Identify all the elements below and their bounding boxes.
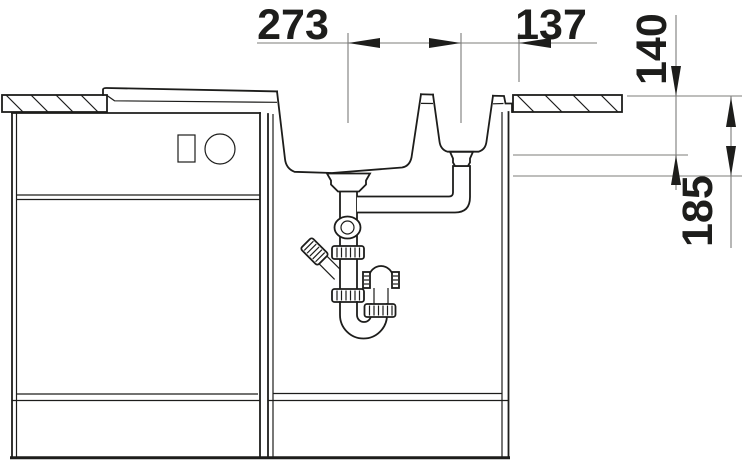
dimension-273: 273 — [257, 1, 461, 123]
countertop-left-section — [2, 95, 107, 112]
trap-outlet-swivel — [363, 266, 399, 317]
left-base-cabinet — [12, 113, 260, 457]
control-panel-square-symbol — [178, 135, 195, 162]
main-drain-flange — [327, 174, 370, 192]
small-bowl — [433, 95, 493, 152]
countertop-right-section — [513, 95, 622, 112]
dimension-label-140: 140 — [628, 13, 676, 85]
dimension-label-185: 185 — [674, 175, 722, 247]
depth-reference-lines — [513, 96, 742, 176]
main-bowl — [277, 91, 421, 173]
sink-profile — [103, 88, 512, 112]
swivel-ring-joint — [335, 217, 361, 239]
sink-base-cabinet — [268, 112, 509, 457]
dimension-185: 185 — [674, 96, 736, 248]
small-drain-flange — [450, 152, 473, 166]
union-nut-lower — [332, 289, 364, 302]
union-nut-upper — [332, 246, 364, 259]
dimension-label-273: 273 — [257, 1, 329, 49]
control-panel-circle-symbol — [205, 134, 235, 164]
sink-installation-drawing: 273 137 140 185 — [0, 0, 742, 463]
small-bowl-drain-pipe — [357, 152, 473, 213]
hatching-right — [517, 95, 618, 112]
drawing-canvas: 273 137 140 185 — [0, 0, 742, 463]
dimension-140: 140 — [628, 13, 681, 190]
dimension-label-137: 137 — [515, 1, 587, 49]
hatching-left — [6, 95, 98, 112]
dimension-137: 137 — [461, 1, 597, 82]
